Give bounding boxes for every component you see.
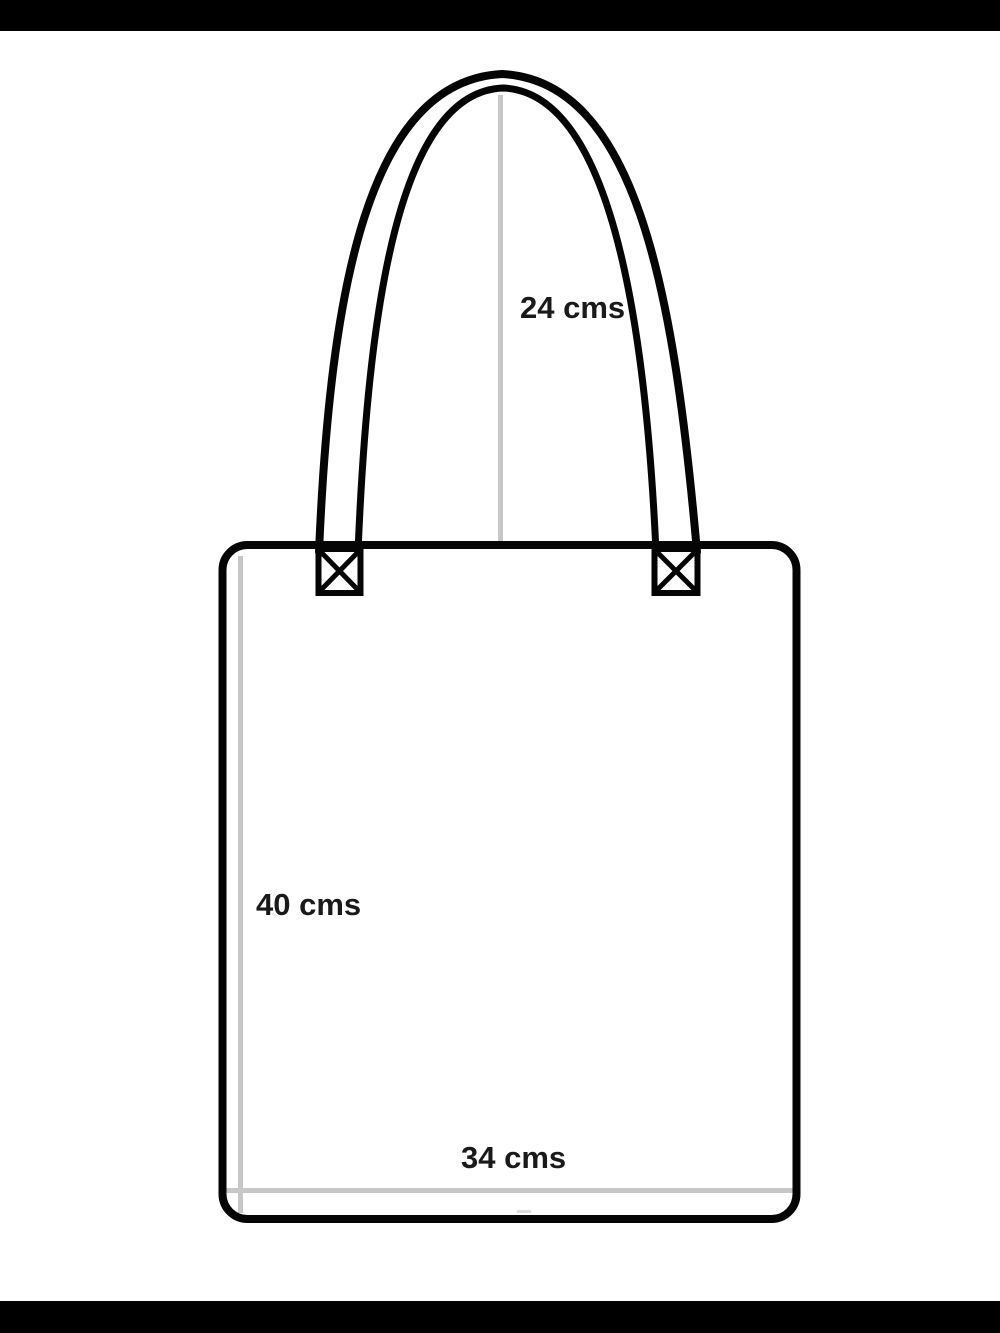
bottom-letterbox-bar: [0, 1301, 1000, 1333]
guide-lines: [224, 95, 796, 1213]
bag-height-measurement-label: 40 cms: [256, 889, 361, 920]
bag-width-measurement-label: 34 cms: [461, 1142, 566, 1173]
handle-drop-measurement-label: 24 cms: [520, 292, 625, 323]
right-strap-attachment-box: [655, 549, 698, 593]
bag-body-outline: [223, 545, 797, 1219]
tote-bag-diagram: 24 cms 40 cms 34 cms: [0, 0, 1000, 1333]
handle: [319, 74, 697, 552]
tote-bag-diagram-canvas: [0, 0, 1000, 1333]
left-strap-attachment-box: [319, 549, 361, 593]
